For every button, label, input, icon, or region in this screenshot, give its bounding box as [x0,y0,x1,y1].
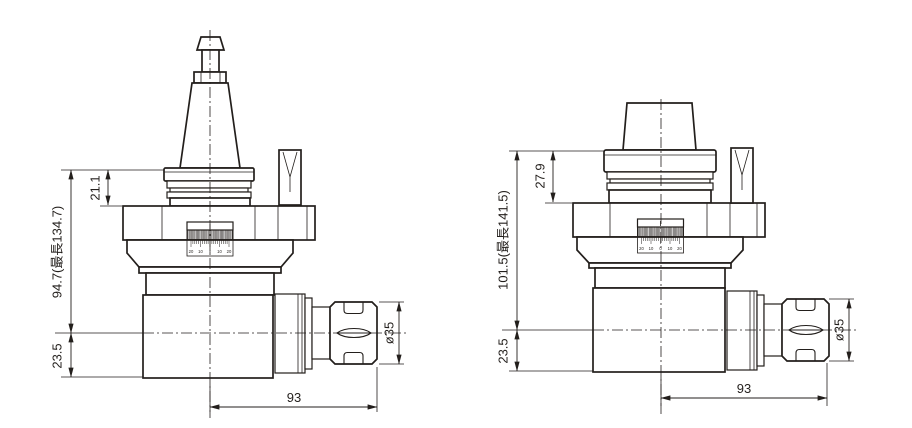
dim-length-right: 93 [737,381,751,396]
v-groove [170,188,248,192]
v-groove-lower [167,192,251,198]
spindle-housing [143,295,273,378]
spindle-nose-collet-nut [727,291,829,370]
flange-lower-ring [609,190,711,203]
right-body-outline [573,103,829,372]
dim-length-left: 93 [287,390,301,405]
v-groove-upper [167,181,251,188]
body-neck [595,268,725,288]
dim-diameter-left: ø35 [382,322,397,344]
dim-diameter-right: ø35 [832,319,847,341]
left-body-outline [123,37,377,378]
dial-tick-label: 10 [649,246,654,251]
v-groove [610,179,710,183]
dial-tick-label: 20 [189,249,194,254]
right-view-hsk-shank-angle-head: 20 10 0 10 20 27.9 101.5(最長141.5) 23.5 9… [496,99,859,414]
dial-tick-label: 10 [668,246,673,251]
dim-overall-left: 94.7(最長134.7) [50,206,65,299]
pull-stud-neck [202,50,219,72]
stop-block [731,148,753,203]
dial-tick-label: 20 [227,249,232,254]
hsk-shank [623,103,696,150]
dim-upper-left: 21.1 [88,175,103,200]
dial-tick-label: 10 [217,249,222,254]
dim-lower-left: 23.5 [50,343,65,368]
left-view-bt-shank-angle-head: 20 10 0 10 20 21.1 94.7(最長134.7) 23.5 93… [50,30,407,418]
spindle-nose-collet-nut [275,294,377,373]
dial-tick-label: 20 [639,246,644,251]
flange-ring [604,150,716,172]
flange-ring [164,168,254,181]
stop-block [279,150,301,205]
angle-head-technical-drawing: 20 10 0 10 20 21.1 94.7(最長134.7) 23.5 93… [0,0,912,428]
dial-tick-label: 10 [198,249,203,254]
v-groove-lower [607,183,713,190]
pull-stud-head [197,37,224,50]
dim-overall-right: 101.5(最長141.5) [496,190,511,290]
v-groove-upper [607,172,713,179]
dim-lower-right: 23.5 [496,338,511,363]
dial-tick-label: 20 [677,246,682,251]
dim-upper-right: 27.9 [533,163,548,188]
drawing-sheet: 20 10 0 10 20 21.1 94.7(最長134.7) 23.5 93… [0,0,912,428]
